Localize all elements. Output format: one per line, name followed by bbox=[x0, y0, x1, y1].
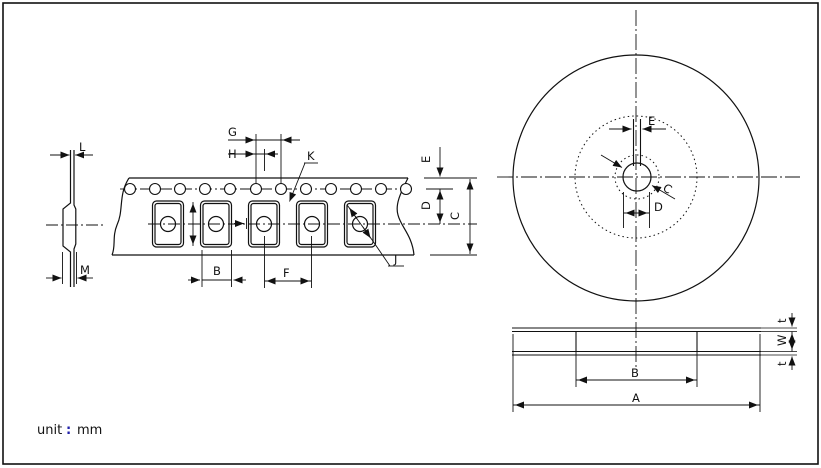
dim-label-t-bottom: t bbox=[775, 361, 789, 366]
dim-label-A-reel: A bbox=[632, 391, 640, 405]
dim-label-C-reel: C bbox=[660, 181, 674, 197]
dim-label-J: J bbox=[393, 252, 397, 266]
dimension-G-H bbox=[228, 134, 300, 183]
dim-label-K: K bbox=[307, 149, 315, 163]
sprocket-hole bbox=[225, 184, 236, 195]
dimension-F bbox=[265, 236, 312, 288]
reel-flanges bbox=[512, 328, 761, 355]
reel-key-slot bbox=[634, 119, 641, 166]
sprocket-hole bbox=[150, 184, 161, 195]
unit-value: mm bbox=[77, 423, 102, 438]
sprocket-hole bbox=[401, 184, 412, 195]
dim-label-M: M bbox=[80, 263, 90, 277]
sprocket-hole bbox=[200, 184, 211, 195]
dim-label-H: H bbox=[228, 147, 237, 161]
dim-label-B-reel: B bbox=[631, 366, 639, 380]
sprocket-hole bbox=[175, 184, 186, 195]
dimension-D-reel bbox=[624, 192, 650, 228]
dim-label-t-top: t bbox=[775, 318, 789, 323]
sprocket-hole bbox=[301, 184, 312, 195]
sprocket-hole bbox=[376, 184, 387, 195]
technical-drawing: L M bbox=[0, 0, 821, 468]
dim-label-C-tape: C bbox=[448, 212, 462, 220]
dim-label-F: F bbox=[283, 266, 290, 280]
dim-label-G: G bbox=[228, 125, 237, 139]
dim-label-E-tape: E bbox=[419, 156, 433, 163]
reel-hub bbox=[576, 332, 697, 352]
drawing-frame bbox=[3, 3, 818, 464]
sprocket-hole bbox=[276, 184, 287, 195]
leader-K bbox=[290, 163, 319, 202]
dim-label-E-reel: E bbox=[648, 114, 655, 128]
sprocket-hole bbox=[251, 184, 262, 195]
dim-label-D-tape: D bbox=[419, 201, 433, 210]
reel-side-view bbox=[512, 313, 797, 412]
tape-side-profile bbox=[46, 150, 103, 287]
sprocket-hole bbox=[351, 184, 362, 195]
unit-prefix: unit bbox=[37, 423, 62, 438]
reel-front-view bbox=[497, 10, 800, 368]
dim-label-L: L bbox=[79, 140, 86, 154]
dim-label-W: W bbox=[775, 335, 789, 346]
dim-label-B-tape: B bbox=[213, 264, 221, 278]
unit-label: unit:mm bbox=[37, 423, 102, 438]
sprocket-hole bbox=[326, 184, 337, 195]
unit-separator: : bbox=[66, 423, 71, 438]
drawing-page: L M bbox=[0, 0, 821, 468]
sprocket-hole bbox=[125, 184, 136, 195]
dim-label-D-reel: D bbox=[654, 200, 663, 214]
